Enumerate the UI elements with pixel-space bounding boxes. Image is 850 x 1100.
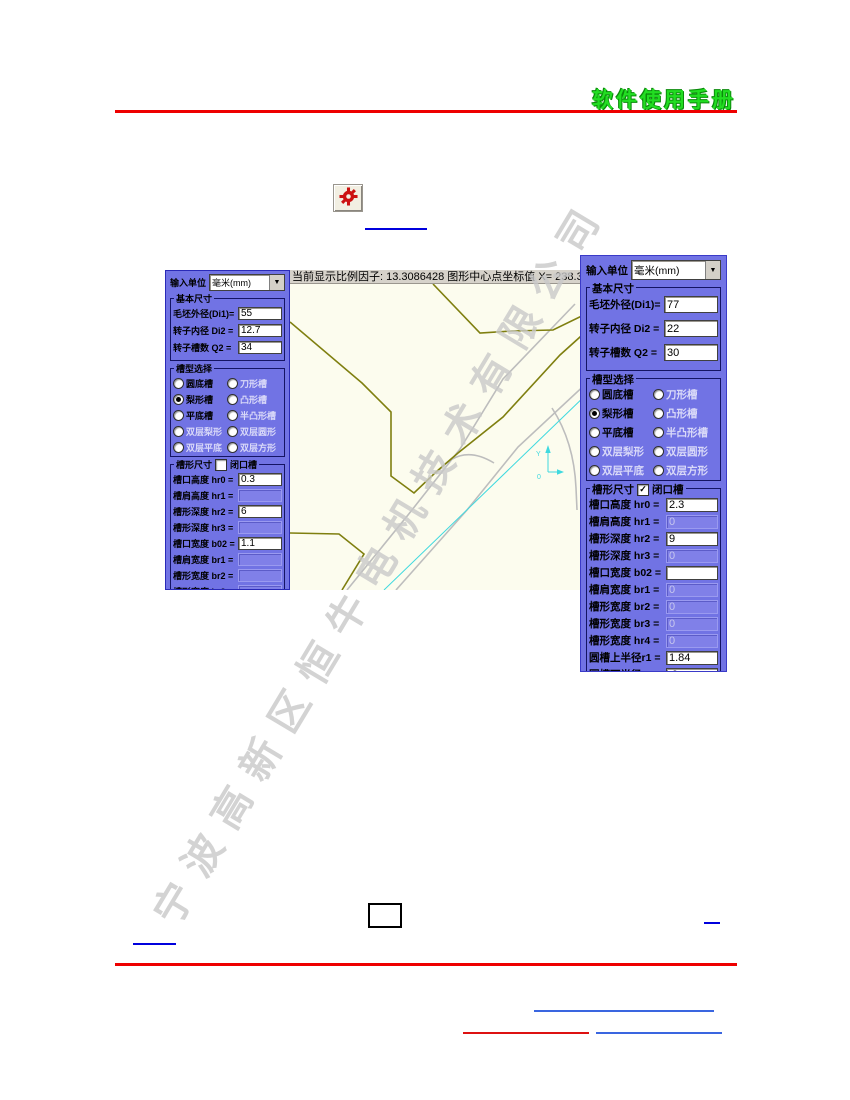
slot-type-radio[interactable]: 梨形槽 (589, 406, 651, 421)
group-title: 槽型选择 (174, 362, 214, 375)
radio-label: 双层方形 (666, 463, 708, 478)
field-input[interactable] (238, 341, 282, 354)
slot-type-radio[interactable]: 平底槽 (173, 409, 225, 422)
group-title: 基本尺寸 (590, 281, 636, 296)
radio-label: 平底槽 (186, 409, 213, 422)
radio-label: 圆底槽 (602, 387, 634, 402)
field-input[interactable] (666, 498, 718, 512)
field-label: 圆槽上半径r1 = (589, 650, 666, 665)
radio-icon (589, 465, 600, 476)
unit-label: 输入单位 (170, 276, 206, 289)
slot-type-radio[interactable]: 刀形槽 (653, 387, 718, 402)
field-input[interactable] (238, 505, 282, 518)
radio-icon (653, 389, 664, 400)
radio-icon (173, 378, 184, 389)
radio-icon (653, 446, 664, 457)
closed-slot-checkbox[interactable] (215, 459, 227, 471)
field-input[interactable] (238, 324, 282, 337)
radio-icon (589, 446, 600, 457)
radio-icon (173, 426, 184, 437)
field-label: 槽形深度 hr2 = (173, 505, 238, 518)
slot-type-radio[interactable]: 凸形槽 (227, 393, 282, 406)
basic-field-row: 转子内径 Di2 = (173, 324, 282, 337)
slot-type-radio[interactable]: 梨形槽 (173, 393, 225, 406)
field-input[interactable] (238, 473, 282, 486)
basic-field-row: 转子槽数 Q2 = (173, 341, 282, 354)
field-input[interactable] (666, 651, 718, 665)
field-input[interactable] (238, 585, 282, 590)
dim-field-row: 槽形深度 hr3 = (173, 521, 282, 534)
footer-rule (115, 963, 737, 966)
field-label: 毛坯外径(Di1)= (173, 307, 238, 320)
radio-label: 半凸形槽 (666, 425, 708, 440)
slot-type-radio[interactable]: 双层方形 (227, 441, 282, 454)
unit-label: 输入单位 (586, 263, 628, 278)
field-input[interactable] (238, 489, 282, 502)
closed-slot-label: 闭口槽 (230, 458, 257, 471)
slot-type-radio[interactable]: 凸形槽 (653, 406, 718, 421)
field-input[interactable] (666, 583, 718, 597)
radio-icon (227, 442, 238, 453)
dim-field-row: 槽口高度 hr0 = (173, 473, 282, 486)
dim-field-row: 槽肩宽度 br1 = (589, 582, 718, 597)
field-label: 槽口宽度 b02 = (589, 565, 666, 580)
radio-icon (589, 408, 600, 419)
radio-icon (227, 378, 238, 389)
field-label: 槽口宽度 b02 = (173, 537, 238, 550)
field-input[interactable] (666, 668, 718, 673)
radio-icon (227, 394, 238, 405)
field-input[interactable] (238, 569, 282, 582)
dim-field-row: 槽形宽度 br2 = (589, 599, 718, 614)
basic-field-row: 转子内径 Di2 = (589, 320, 718, 337)
dim-field-row: 圆槽下半径r2 = (589, 667, 718, 672)
radio-label: 圆底槽 (186, 377, 213, 390)
radio-label: 平底槽 (602, 425, 634, 440)
slot-type-radio[interactable]: 半凸形槽 (227, 409, 282, 422)
unit-value: 毫米(mm) (210, 276, 269, 289)
radio-icon (173, 394, 184, 405)
dim-field-row: 槽形深度 hr2 = (173, 505, 282, 518)
dim-field-row: 槽口高度 hr0 = (589, 497, 718, 512)
field-label: 槽形深度 hr2 = (589, 531, 666, 546)
slot-type-radio[interactable]: 双层梨形 (173, 425, 225, 438)
radio-label: 刀形槽 (240, 377, 267, 390)
chevron-down-icon[interactable]: ▼ (705, 261, 720, 279)
basic-size-group: 基本尺寸 毛坯外径(Di1)= 转子内径 Di2 = 转子槽数 Q2 = (170, 298, 285, 361)
radio-icon (653, 465, 664, 476)
footer-link-underline[interactable] (596, 1032, 722, 1034)
field-input[interactable] (666, 617, 718, 631)
radio-label: 双层圆形 (666, 444, 708, 459)
group-title: 槽形尺寸 闭口槽 (590, 482, 686, 497)
group-title: 基本尺寸 (174, 292, 214, 305)
field-label: 圆槽下半径r2 = (589, 667, 666, 672)
slot-type-radio[interactable]: 双层平底 (173, 441, 225, 454)
field-label: 转子内径 Di2 = (589, 321, 664, 336)
group-title: 槽型选择 (590, 372, 636, 387)
gear-button[interactable] (333, 184, 363, 212)
dim-field-row: 槽口宽度 b02 = (173, 537, 282, 550)
field-input[interactable] (666, 600, 718, 614)
group-title-text: 槽形尺寸 (176, 458, 212, 471)
field-input[interactable] (664, 320, 718, 337)
dim-field-row: 槽形宽度 br3 = (589, 616, 718, 631)
field-input[interactable] (666, 515, 718, 529)
slot-type-radio[interactable]: 刀形槽 (227, 377, 282, 390)
radio-label: 双层梨形 (186, 425, 222, 438)
radio-label: 双层梨形 (602, 444, 644, 459)
slot-type-radio[interactable]: 圆底槽 (173, 377, 225, 390)
slot-dim-group: 槽形尺寸 闭口槽 槽口高度 hr0 = 槽肩高度 hr1 = 槽形深度 hr2 … (170, 464, 285, 590)
axis-marker: Y 0 (536, 445, 564, 481)
field-label: 毛坯外径(Di1)= (589, 297, 664, 312)
slot-type-group: 槽型选择 圆底槽 刀形槽 梨形槽 (170, 368, 285, 457)
radio-label: 双层平底 (602, 463, 644, 478)
dim-field-row: 槽形深度 hr2 = (589, 531, 718, 546)
field-label: 转子内径 Di2 = (173, 324, 238, 337)
field-input[interactable] (238, 553, 282, 566)
hyperlink-underline[interactable] (365, 228, 427, 230)
radio-icon (173, 410, 184, 421)
radio-icon (589, 389, 600, 400)
field-label: 槽口高度 hr0 = (589, 497, 666, 512)
svg-text:Y: Y (536, 451, 541, 458)
slot-type-radio[interactable]: 双层圆形 (653, 444, 718, 459)
radio-label: 凸形槽 (666, 406, 698, 421)
field-input[interactable] (238, 521, 282, 534)
radio-icon (653, 427, 664, 438)
radio-label: 双层平底 (186, 441, 222, 454)
field-label: 槽肩宽度 br1 = (589, 582, 666, 597)
field-label: 转子槽数 Q2 = (173, 341, 238, 354)
hyperlink-underline[interactable] (133, 943, 176, 945)
basic-size-group: 基本尺寸 毛坯外径(Di1)= 转子内径 Di2 = 转子槽数 Q2 = (586, 287, 721, 371)
dim-field-row: 槽肩高度 hr1 = (589, 514, 718, 529)
field-label: 转子槽数 Q2 = (589, 345, 664, 360)
footer-link-underline-red[interactable] (463, 1032, 589, 1034)
slot-type-radio[interactable]: 平底槽 (589, 425, 651, 440)
field-input[interactable] (666, 634, 718, 648)
field-label: 槽形宽度 br2 = (589, 599, 666, 614)
unit-value: 毫米(mm) (632, 263, 705, 278)
field-input[interactable] (666, 532, 718, 546)
field-label: 槽口高度 hr0 = (173, 473, 238, 486)
right-parameter-panel: 输入单位 毫米(mm) ▼ 基本尺寸 毛坯外径(Di1)= 转子内径 Di2 =… (580, 255, 727, 672)
dim-field-row: 槽口宽度 b02 = (589, 565, 718, 580)
dim-field-row: 槽形宽度 hr4 = (589, 633, 718, 648)
group-title-text: 槽形尺寸 (592, 482, 634, 497)
manual-page: 软件使用手册 宁波高新区恒牛电机技术有限公司 (0, 0, 850, 1100)
radio-label: 梨形槽 (186, 393, 213, 406)
field-input[interactable] (664, 344, 718, 361)
slot-dim-group: 槽形尺寸 闭口槽 槽口高度 hr0 = 槽肩高度 hr1 = 槽形深度 hr2 … (586, 488, 721, 672)
radio-label: 半凸形槽 (240, 409, 276, 422)
footer-link-underline[interactable] (534, 1010, 714, 1012)
radio-icon (653, 408, 664, 419)
dim-field-row: 圆槽上半径r1 = (589, 650, 718, 665)
slot-type-group: 槽型选择 圆底槽 刀形槽 梨形槽 凸形槽 (586, 378, 721, 481)
radio-icon (173, 442, 184, 453)
closed-slot-label: 闭口槽 (652, 482, 684, 497)
radio-icon (227, 410, 238, 421)
radio-label: 双层圆形 (240, 425, 276, 438)
field-label: 槽形深度 hr3 = (173, 521, 238, 534)
group-title: 槽形尺寸 闭口槽 (174, 458, 259, 471)
field-input[interactable] (238, 537, 282, 550)
dim-field-row: 槽肩高度 hr1 = (173, 489, 282, 502)
gear-icon (339, 187, 358, 209)
slot-type-radio[interactable]: 半凸形槽 (653, 425, 718, 440)
field-input[interactable] (666, 566, 718, 580)
unit-dropdown[interactable]: 毫米(mm) ▼ (631, 260, 721, 280)
field-label: 槽肩宽度 br1 = (173, 553, 238, 566)
field-label: 槽形宽度 hr4 = (589, 633, 666, 648)
basic-field-row: 毛坯外径(Di1)= (173, 307, 282, 320)
field-input[interactable] (664, 296, 718, 313)
slot-type-radio[interactable]: 双层方形 (653, 463, 718, 478)
header-rule (115, 110, 737, 113)
radio-label: 梨形槽 (602, 406, 634, 421)
field-input[interactable] (238, 307, 282, 320)
field-label: 槽形宽度 br3 = (589, 616, 666, 631)
basic-field-row: 转子槽数 Q2 = (589, 344, 718, 361)
svg-text:0: 0 (537, 474, 541, 481)
hyperlink-underline[interactable] (704, 922, 720, 924)
slot-type-radio[interactable]: 双层梨形 (589, 444, 651, 459)
field-label: 槽形宽度 br2 = (173, 569, 238, 582)
dim-field-row: 槽形深度 hr3 = (589, 548, 718, 563)
slot-type-radio[interactable]: 圆底槽 (589, 387, 651, 402)
field-label: 槽肩高度 hr1 = (173, 489, 238, 502)
field-input[interactable] (666, 549, 718, 563)
radio-icon (227, 426, 238, 437)
dim-field-row: 槽形宽度 br2 = (173, 569, 282, 582)
unit-dropdown[interactable]: 毫米(mm) ▼ (209, 274, 285, 291)
closed-slot-checkbox[interactable] (637, 484, 649, 496)
basic-field-row: 毛坯外径(Di1)= (589, 296, 718, 313)
slot-type-radio[interactable]: 双层圆形 (227, 425, 282, 438)
field-label: 槽肩高度 hr1 = (589, 514, 666, 529)
field-label: 槽形深度 hr3 = (589, 548, 666, 563)
dim-field-row: 槽形宽度 br3 = (173, 585, 282, 590)
field-label: 槽形宽度 br3 = (173, 585, 238, 590)
radio-label: 双层方形 (240, 441, 276, 454)
radio-label: 凸形槽 (240, 393, 267, 406)
dim-field-row: 槽肩宽度 br1 = (173, 553, 282, 566)
slot-type-radio[interactable]: 双层平底 (589, 463, 651, 478)
chevron-down-icon[interactable]: ▼ (269, 275, 284, 290)
radio-icon (589, 427, 600, 438)
left-parameter-panel: 输入单位 毫米(mm) ▼ 基本尺寸 毛坯外径(Di1)= 转子内径 Di2 = (165, 270, 290, 590)
radio-label: 刀形槽 (666, 387, 698, 402)
empty-rectangle (368, 903, 402, 928)
